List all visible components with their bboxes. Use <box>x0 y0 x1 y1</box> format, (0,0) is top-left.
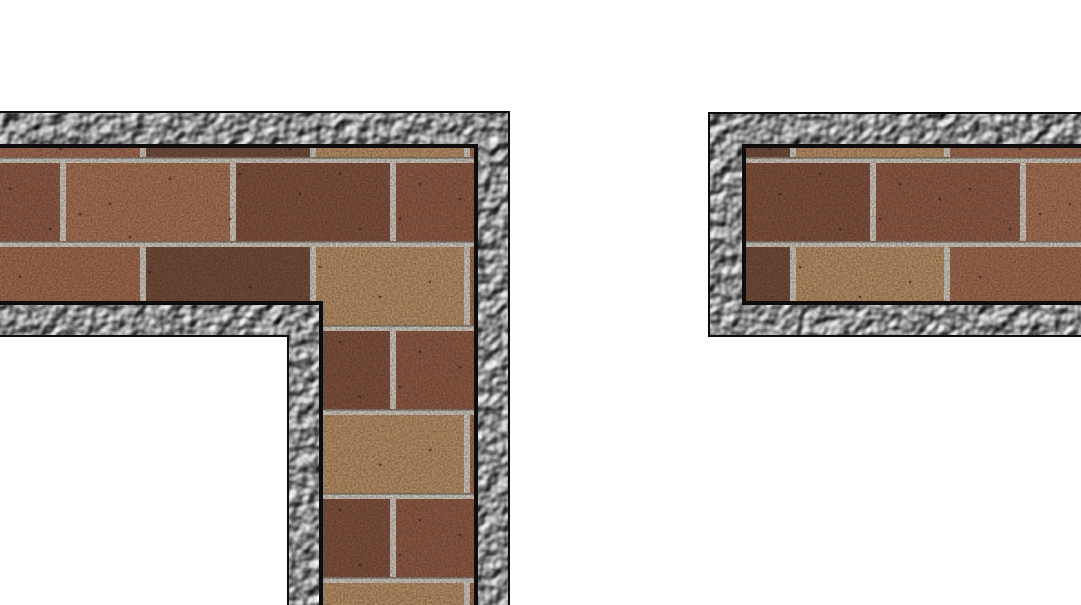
l-shaped-wall-segment <box>0 111 510 605</box>
game-scene <box>0 0 1081 605</box>
walls-canvas <box>0 0 1081 605</box>
horizontal-wall-segment <box>708 112 1081 337</box>
wall-brick-fill <box>744 146 1081 303</box>
wall-brick-fill <box>0 146 476 605</box>
